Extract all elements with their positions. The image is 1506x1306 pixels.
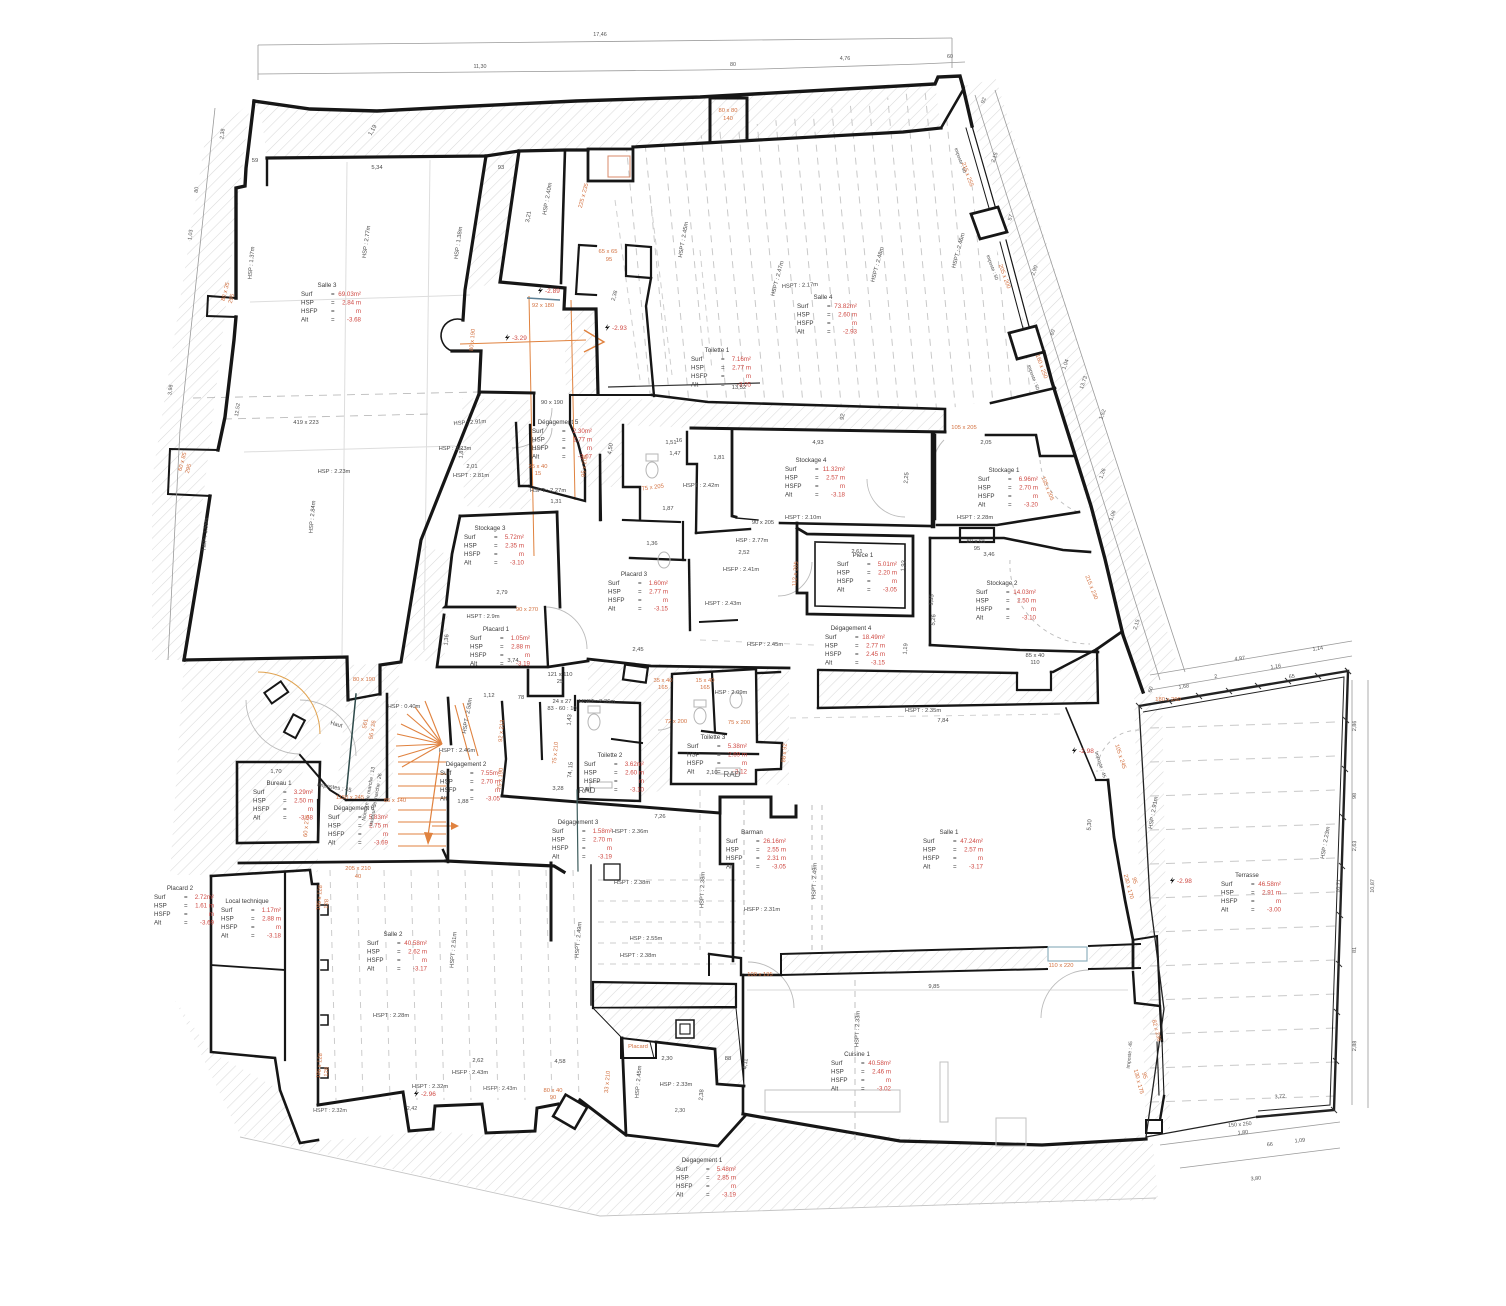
svg-text:65: 65 (1288, 674, 1295, 681)
svg-text:1,31: 1,31 (550, 499, 561, 505)
svg-text:2.35 m: 2.35 m (505, 543, 524, 550)
svg-text:HSP : 2.23m: HSP : 2.23m (318, 469, 351, 475)
svg-text:m: m (525, 652, 530, 659)
svg-text:HSP: HSP (154, 903, 167, 910)
svg-text:=: = (500, 635, 504, 642)
svg-text:2.20 m: 2.20 m (878, 570, 897, 577)
svg-text:98: 98 (1352, 793, 1358, 799)
svg-text:Surf: Surf (464, 534, 476, 541)
svg-text:=: = (614, 787, 618, 794)
svg-text:40.58m²: 40.58m² (404, 940, 427, 947)
svg-text:Salle 1: Salle 1 (940, 829, 959, 836)
svg-text:HSFP: HSFP (837, 578, 854, 585)
svg-text:90 x 205: 90 x 205 (752, 520, 774, 526)
svg-text:=: = (953, 855, 957, 862)
svg-text:2.60 m: 2.60 m (838, 312, 857, 319)
svg-text:24 x 27: 24 x 27 (552, 699, 571, 705)
svg-text:80 x 65: 80 x 65 (966, 539, 985, 545)
svg-text:=: = (1008, 476, 1012, 483)
svg-text:Surf: Surf (785, 466, 797, 473)
svg-text:Surf: Surf (797, 303, 809, 310)
svg-text:HSP: HSP (785, 475, 798, 482)
svg-text:180 x 260: 180 x 260 (1155, 697, 1180, 703)
svg-text:m: m (663, 597, 668, 604)
svg-text:=: = (331, 308, 335, 315)
svg-text:1,36: 1,36 (646, 541, 657, 547)
svg-text:Alt: Alt (253, 815, 261, 822)
svg-text:Surf: Surf (301, 291, 313, 298)
svg-text:HSPT : 2.32m: HSPT : 2.32m (412, 1084, 448, 1090)
svg-text:92 x 180: 92 x 180 (532, 303, 554, 309)
svg-text:7.16m²: 7.16m² (732, 356, 751, 363)
svg-text:=: = (184, 911, 188, 918)
svg-text:Barman: Barman (741, 829, 763, 836)
svg-text:m: m (1031, 606, 1036, 613)
svg-text:2.88 m: 2.88 m (511, 644, 530, 651)
svg-text:=: = (470, 787, 474, 794)
svg-text:-3.15: -3.15 (654, 606, 669, 613)
svg-text:Dégagement 3: Dégagement 3 (558, 819, 599, 826)
svg-text:HSFP: HSFP (978, 493, 995, 500)
svg-text:-3.19: -3.19 (722, 1192, 737, 1199)
svg-text:140: 140 (723, 116, 733, 122)
svg-text:Toilette 1: Toilette 1 (705, 347, 730, 354)
svg-text:m: m (422, 957, 427, 964)
svg-text:5,30: 5,30 (1087, 819, 1094, 831)
svg-text:=: = (706, 1166, 710, 1173)
svg-text:-3.17: -3.17 (413, 966, 428, 973)
svg-text:=: = (638, 580, 642, 587)
svg-text:Toilette 2: Toilette 2 (598, 752, 623, 759)
svg-text:=: = (827, 329, 831, 336)
svg-text:92: 92 (840, 413, 847, 420)
svg-text:m: m (892, 578, 897, 585)
svg-text:Alt: Alt (978, 502, 986, 509)
svg-text:Alt: Alt (328, 840, 336, 847)
svg-text:-3.17: -3.17 (969, 864, 984, 871)
svg-text:419 x 223: 419 x 223 (293, 420, 318, 426)
svg-text:72 x 200: 72 x 200 (665, 719, 687, 725)
svg-text:=: = (500, 661, 504, 668)
svg-text:4,93: 4,93 (812, 440, 823, 446)
svg-text:HSPT : 2.36m: HSPT : 2.36m (612, 829, 648, 835)
svg-text:81: 81 (1352, 947, 1358, 953)
svg-text:Surf: Surf (608, 580, 620, 587)
svg-text:=: = (855, 660, 859, 667)
svg-text:2,42: 2,42 (407, 1106, 418, 1112)
svg-text:=: = (614, 778, 618, 785)
svg-text:HSP: HSP (676, 1175, 689, 1182)
svg-text:2.57 m: 2.57 m (964, 847, 983, 854)
svg-text:m: m (639, 778, 644, 785)
svg-text:5.72m²: 5.72m² (505, 534, 524, 541)
svg-text:=: = (397, 940, 401, 947)
svg-text:=: = (721, 365, 725, 372)
svg-text:165: 165 (700, 685, 710, 691)
svg-text:-3.05: -3.05 (883, 587, 898, 594)
svg-text:=: = (562, 428, 566, 435)
svg-text:Alt: Alt (676, 1192, 684, 1199)
svg-text:=: = (614, 761, 618, 768)
svg-text:7,26: 7,26 (654, 814, 665, 820)
svg-text:165: 165 (658, 685, 668, 691)
svg-text:1.17m²: 1.17m² (262, 907, 281, 914)
svg-text:Placard 3: Placard 3 (621, 571, 648, 578)
svg-text:m: m (978, 855, 983, 862)
svg-text:1,35: 1,35 (929, 594, 936, 606)
svg-text:Alt: Alt (825, 660, 833, 667)
svg-text:2.55 m: 2.55 m (767, 847, 786, 854)
svg-text:Surf: Surf (978, 476, 990, 483)
svg-text:HSFP: HSFP (831, 1077, 848, 1084)
svg-text:HSP: HSP (831, 1069, 844, 1076)
svg-text:Placard 2: Placard 2 (167, 885, 194, 892)
svg-text:1,70: 1,70 (270, 769, 281, 775)
svg-text:Stockage 1: Stockage 1 (989, 467, 1021, 474)
svg-text:5,34: 5,34 (371, 165, 383, 171)
svg-text:Stockage 4: Stockage 4 (796, 457, 828, 464)
svg-text:=: = (756, 847, 760, 854)
svg-text:HSP: HSP (797, 312, 810, 319)
svg-text:HSP: HSP (464, 543, 477, 550)
svg-text:HSFP : 2.45m: HSFP : 2.45m (747, 642, 783, 648)
svg-text:HSP: HSP (976, 598, 989, 605)
svg-text:HSP : 3.23m: HSP : 3.23m (439, 446, 472, 452)
svg-text:80 x 80: 80 x 80 (718, 108, 737, 114)
svg-text:HSPT : 2.35m: HSPT : 2.35m (905, 708, 941, 714)
svg-text:100 x 195: 100 x 195 (747, 972, 772, 978)
svg-text:Surf: Surf (253, 789, 265, 796)
svg-text:=: = (562, 445, 566, 452)
svg-text:Alt: Alt (552, 854, 560, 861)
svg-text:=: = (283, 789, 287, 796)
svg-text:2.91 m: 2.91 m (1262, 890, 1281, 897)
svg-text:=: = (867, 570, 871, 577)
svg-text:=: = (494, 560, 498, 567)
svg-text:=: = (827, 303, 831, 310)
svg-text:Surf: Surf (825, 634, 837, 641)
svg-text:15: 15 (535, 471, 541, 477)
svg-text:=: = (706, 1183, 710, 1190)
svg-text:=: = (251, 907, 255, 914)
svg-text:=: = (717, 752, 721, 759)
svg-text:=: = (861, 1086, 865, 1093)
svg-text:Salle 2: Salle 2 (384, 931, 403, 938)
svg-text:95: 95 (606, 257, 612, 263)
svg-text:2.50 m: 2.50 m (294, 798, 313, 805)
svg-text:HSPT : 2.42m: HSPT : 2.42m (683, 483, 719, 489)
svg-text:HSP: HSP (687, 752, 700, 759)
svg-text:HSP : 2.33m: HSP : 2.33m (660, 1082, 693, 1088)
svg-text:35 x 40: 35 x 40 (653, 678, 672, 684)
svg-text:Alt: Alt (687, 769, 695, 776)
svg-text:5.48m²: 5.48m² (717, 1166, 736, 1173)
svg-text:-2.93: -2.93 (612, 325, 627, 332)
svg-text:Surf: Surf (687, 743, 699, 750)
svg-text:=: = (638, 606, 642, 613)
svg-text:Surf: Surf (837, 561, 849, 568)
svg-text:Bureau 1: Bureau 1 (266, 780, 292, 787)
svg-text:110 x 220: 110 x 220 (1048, 963, 1073, 969)
svg-text:2.84 m: 2.84 m (342, 300, 361, 307)
svg-text:=: = (358, 831, 362, 838)
svg-text:=: = (251, 924, 255, 931)
svg-text:HSP: HSP (1221, 890, 1234, 897)
svg-text:Dégagement 2: Dégagement 2 (446, 761, 487, 768)
svg-text:=: = (397, 957, 401, 964)
svg-text:HSFP: HSFP (584, 778, 601, 785)
svg-text:-3.15: -3.15 (871, 660, 886, 667)
svg-text:85 x 40: 85 x 40 (1025, 653, 1044, 659)
svg-text:=: = (1008, 493, 1012, 500)
svg-text:-3.00: -3.00 (1267, 907, 1282, 914)
svg-text:=: = (867, 587, 871, 594)
svg-text:HSP : 0.40m: HSP : 0.40m (388, 704, 421, 710)
svg-text:Alt: Alt (726, 864, 734, 871)
svg-text:=: = (358, 823, 362, 830)
svg-text:Salle 3: Salle 3 (318, 282, 337, 289)
svg-text:=: = (827, 320, 831, 327)
svg-text:-2.93: -2.93 (843, 329, 858, 336)
svg-text:2,88: 2,88 (1352, 1041, 1358, 1052)
svg-text:=: = (470, 770, 474, 777)
svg-text:2.45 m: 2.45 m (866, 651, 885, 658)
svg-text:HSFP: HSFP (687, 760, 704, 767)
svg-text:Surf: Surf (923, 838, 935, 845)
svg-text:HSPT : 2.38m: HSPT : 2.38m (620, 953, 656, 959)
svg-text:121 x 110: 121 x 110 (547, 672, 572, 678)
svg-text:HSFP : 2.43m: HSFP : 2.43m (483, 1086, 517, 1092)
svg-text:2,86: 2,86 (1352, 721, 1358, 732)
svg-text:=: = (562, 437, 566, 444)
svg-text:Dégagement 4: Dégagement 4 (831, 625, 872, 632)
svg-text:=: = (494, 543, 498, 550)
svg-text:=: = (861, 1077, 865, 1084)
svg-text:=: = (855, 651, 859, 658)
svg-text:HSP: HSP (923, 847, 936, 854)
svg-text:Alt: Alt (785, 492, 793, 499)
svg-text:=: = (1008, 485, 1012, 492)
svg-text:=: = (827, 312, 831, 319)
svg-text:-3.18: -3.18 (267, 933, 282, 940)
svg-text:m: m (1276, 898, 1281, 905)
svg-text:HSPT : 2.10m: HSPT : 2.10m (785, 515, 821, 521)
svg-text:HSPT : 2.36m: HSPT : 2.36m (579, 699, 615, 705)
svg-text:11,30: 11,30 (473, 64, 486, 70)
svg-text:HSFP: HSFP (367, 957, 384, 964)
svg-text:5.38m²: 5.38m² (728, 743, 747, 750)
svg-text:Cuisine 1: Cuisine 1 (844, 1051, 870, 1058)
svg-text:1,81: 1,81 (713, 455, 724, 461)
svg-text:2,63: 2,63 (1352, 841, 1358, 852)
svg-text:HSFP: HSFP (301, 308, 318, 315)
svg-text:Dégagement 1: Dégagement 1 (682, 1157, 723, 1164)
svg-text:3,74: 3,74 (507, 658, 519, 664)
svg-text:HSP: HSP (837, 570, 850, 577)
svg-text:205 x 210: 205 x 210 (345, 866, 370, 872)
svg-text:HSPT : 2.32m: HSPT : 2.32m (313, 1108, 347, 1114)
svg-text:=: = (184, 920, 188, 927)
svg-text:2,79: 2,79 (496, 590, 507, 596)
svg-text:69.03m²: 69.03m² (338, 291, 361, 298)
svg-text:HSFP: HSFP (691, 373, 708, 380)
svg-text:65 x 65: 65 x 65 (598, 249, 617, 255)
svg-text:110: 110 (1030, 660, 1039, 666)
svg-text:Alt: Alt (976, 615, 984, 622)
svg-text:m: m (519, 551, 524, 558)
svg-text:RAD: RAD (579, 786, 596, 795)
svg-text:=: = (331, 317, 335, 324)
svg-text:1,87: 1,87 (459, 447, 466, 459)
svg-text:=: = (638, 589, 642, 596)
svg-text:HSPT : 2.81m: HSPT : 2.81m (453, 473, 489, 479)
svg-text:5,26: 5,26 (931, 614, 938, 626)
svg-text:m: m (731, 1183, 736, 1190)
svg-text:1,19: 1,19 (903, 643, 910, 655)
svg-text:m: m (276, 924, 281, 931)
svg-text:HSFP: HSFP (676, 1183, 693, 1190)
svg-text:=: = (721, 373, 725, 380)
svg-text:=: = (706, 1192, 710, 1199)
svg-text:HSPT : 2.27m: HSPT : 2.27m (530, 488, 566, 494)
svg-text:m: m (840, 483, 845, 490)
svg-text:=: = (953, 847, 957, 854)
svg-text:=: = (717, 760, 721, 767)
svg-text:95: 95 (974, 546, 980, 552)
svg-text:Surf: Surf (1221, 881, 1233, 888)
svg-text:59: 59 (252, 158, 258, 164)
svg-text:=: = (721, 356, 725, 363)
svg-text:=: = (1006, 598, 1010, 605)
svg-text:3,46: 3,46 (983, 552, 994, 558)
svg-text:1.58m²: 1.58m² (593, 828, 612, 835)
svg-text:-3.68: -3.68 (347, 317, 362, 324)
svg-text:m: m (356, 308, 361, 315)
svg-text:=: = (855, 634, 859, 641)
svg-text:=: = (582, 828, 586, 835)
svg-text:=: = (562, 454, 566, 461)
svg-text:HSFP : 2.41m: HSFP : 2.41m (723, 567, 759, 573)
svg-text:9,85: 9,85 (928, 984, 939, 990)
svg-text:2.30m²: 2.30m² (573, 428, 592, 435)
svg-text:Surf: Surf (154, 894, 166, 901)
svg-text:Stockage 3: Stockage 3 (475, 525, 507, 532)
svg-text:47.24m²: 47.24m² (960, 838, 983, 845)
svg-text:6.96m²: 6.96m² (1019, 476, 1038, 483)
svg-text:90 x 270: 90 x 270 (516, 607, 538, 613)
svg-text:=: = (251, 933, 255, 940)
svg-text:=: = (867, 578, 871, 585)
svg-text:2,01: 2,01 (466, 464, 477, 470)
svg-text:=: = (614, 770, 618, 777)
svg-text:=: = (283, 806, 287, 813)
svg-text:80: 80 (194, 186, 201, 193)
svg-text:=: = (861, 1060, 865, 1067)
svg-text:=: = (283, 815, 287, 822)
svg-text:-3.19: -3.19 (598, 854, 613, 861)
svg-text:2,38: 2,38 (699, 1089, 706, 1101)
svg-text:93: 93 (498, 165, 504, 171)
svg-text:90 x 190: 90 x 190 (541, 400, 563, 406)
svg-text:4,11: 4,11 (743, 1058, 750, 1069)
svg-text:=: = (494, 551, 498, 558)
svg-text:2,61: 2,61 (851, 549, 862, 555)
svg-text:3.62m²: 3.62m² (625, 761, 644, 768)
svg-text:4,76: 4,76 (840, 56, 851, 62)
svg-text:=: = (1251, 890, 1255, 897)
svg-text:HSPT : 2.28m: HSPT : 2.28m (957, 515, 993, 521)
svg-text:Placard: Placard (628, 1044, 648, 1050)
svg-text:=: = (756, 864, 760, 871)
svg-text:Toilette 3: Toilette 3 (701, 734, 726, 741)
svg-text:=: = (1006, 589, 1010, 596)
svg-text:Alt: Alt (797, 329, 805, 336)
svg-text:-3.69: -3.69 (374, 840, 389, 847)
svg-text:=: = (706, 1175, 710, 1182)
svg-text:2.72m²: 2.72m² (195, 894, 214, 901)
svg-text:=: = (1008, 502, 1012, 509)
svg-text:-3.29: -3.29 (512, 335, 527, 342)
svg-text:=: = (331, 300, 335, 307)
svg-text:Stockage 2: Stockage 2 (987, 580, 1019, 587)
svg-text:HSFP: HSFP (785, 483, 802, 490)
svg-text:=: = (397, 966, 401, 973)
svg-text:128: 128 (324, 1067, 331, 1077)
svg-text:Alt: Alt (532, 454, 540, 461)
svg-text:Alt: Alt (923, 864, 931, 871)
svg-text:=: = (582, 854, 586, 861)
svg-text:90: 90 (550, 1095, 556, 1101)
svg-text:1,12: 1,12 (483, 693, 494, 699)
svg-text:66: 66 (1267, 1142, 1274, 1149)
svg-text:=: = (756, 838, 760, 845)
svg-text:=: = (1006, 606, 1010, 613)
svg-text:10,71: 10,71 (1336, 879, 1342, 893)
svg-text:78: 78 (518, 695, 524, 701)
svg-text:18.49m²: 18.49m² (862, 634, 885, 641)
svg-text:15 x 40: 15 x 40 (695, 678, 714, 684)
svg-text:Alt: Alt (367, 966, 375, 973)
svg-text:2.50 m: 2.50 m (1017, 598, 1036, 605)
svg-text:Surf: Surf (367, 940, 379, 947)
svg-text:HSPT : 2.46m: HSPT : 2.46m (439, 748, 475, 754)
svg-text:3,72: 3,72 (1274, 1094, 1285, 1101)
svg-text:m: m (742, 760, 747, 767)
svg-text:Alt: Alt (470, 661, 478, 668)
svg-text:Local technique: Local technique (225, 898, 269, 905)
svg-text:1,47: 1,47 (669, 451, 680, 457)
svg-text:46.58m²: 46.58m² (1258, 881, 1281, 888)
svg-text:HSFP: HSFP (253, 806, 270, 813)
svg-text:=: = (283, 798, 287, 805)
svg-text:3,80: 3,80 (1250, 1176, 1261, 1183)
svg-text:HSPT : 2.43m: HSPT : 2.43m (705, 601, 741, 607)
svg-text:85 x 140: 85 x 140 (384, 798, 406, 804)
svg-text:HSP : 2.77m: HSP : 2.77m (736, 538, 769, 544)
svg-text:2,05: 2,05 (980, 440, 991, 446)
svg-text:2.46 m: 2.46 m (872, 1069, 891, 1076)
svg-text:1.05m²: 1.05m² (511, 635, 530, 642)
svg-text:3.29m²: 3.29m² (294, 789, 313, 796)
svg-text:13,52: 13,52 (732, 385, 747, 391)
svg-text:HSPT : 2.28m: HSPT : 2.28m (373, 1013, 409, 1019)
svg-text:HSFP: HSFP (825, 651, 842, 658)
svg-text:HSFP: HSFP (726, 855, 743, 862)
svg-text:Surf: Surf (470, 635, 482, 642)
svg-text:HSP: HSP (328, 823, 341, 830)
svg-text:Surf: Surf (976, 589, 988, 596)
svg-text:=: = (500, 644, 504, 651)
